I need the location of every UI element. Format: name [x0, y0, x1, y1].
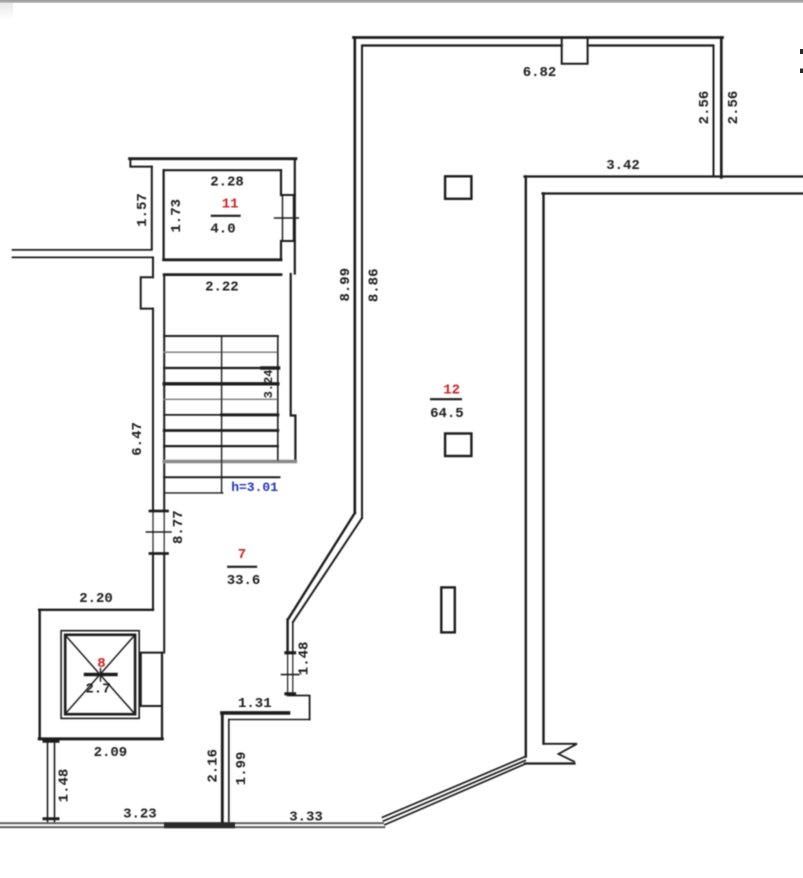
- svg-text:8.77: 8.77: [171, 510, 187, 544]
- svg-text:6.82: 6.82: [523, 65, 557, 81]
- svg-text:2.16: 2.16: [205, 749, 221, 783]
- svg-text:12: 12: [443, 383, 460, 399]
- svg-text:64.5: 64.5: [430, 406, 464, 422]
- svg-text:2.56: 2.56: [726, 91, 742, 125]
- svg-text:8: 8: [97, 656, 105, 672]
- svg-text:1.31: 1.31: [238, 696, 272, 712]
- svg-text:h=3.01: h=3.01: [231, 480, 278, 495]
- svg-text:2.7: 2.7: [85, 682, 110, 698]
- svg-text:3.23: 3.23: [123, 807, 157, 823]
- svg-text:7: 7: [238, 547, 246, 563]
- svg-text:1.73: 1.73: [169, 199, 185, 233]
- svg-text:1.48: 1.48: [57, 769, 73, 803]
- svg-text:2.22: 2.22: [205, 280, 239, 296]
- svg-text:3.24: 3.24: [262, 370, 276, 399]
- svg-text:2.20: 2.20: [79, 591, 113, 607]
- svg-text:33.6: 33.6: [227, 573, 261, 589]
- svg-text:3.42: 3.42: [606, 158, 640, 174]
- svg-text:1.48: 1.48: [297, 642, 313, 676]
- svg-text:2.28: 2.28: [210, 175, 244, 191]
- svg-text:6.47: 6.47: [130, 422, 146, 456]
- svg-text:2.56: 2.56: [697, 91, 713, 125]
- svg-text:11: 11: [222, 197, 239, 213]
- svg-text:8.99: 8.99: [338, 268, 354, 302]
- svg-text:1.57: 1.57: [135, 193, 151, 227]
- svg-text:4.0: 4.0: [210, 222, 235, 238]
- svg-text:2.09: 2.09: [94, 745, 128, 761]
- svg-text:1.99: 1.99: [234, 752, 250, 786]
- svg-text:3.33: 3.33: [289, 810, 323, 826]
- svg-text:8.86: 8.86: [366, 268, 382, 302]
